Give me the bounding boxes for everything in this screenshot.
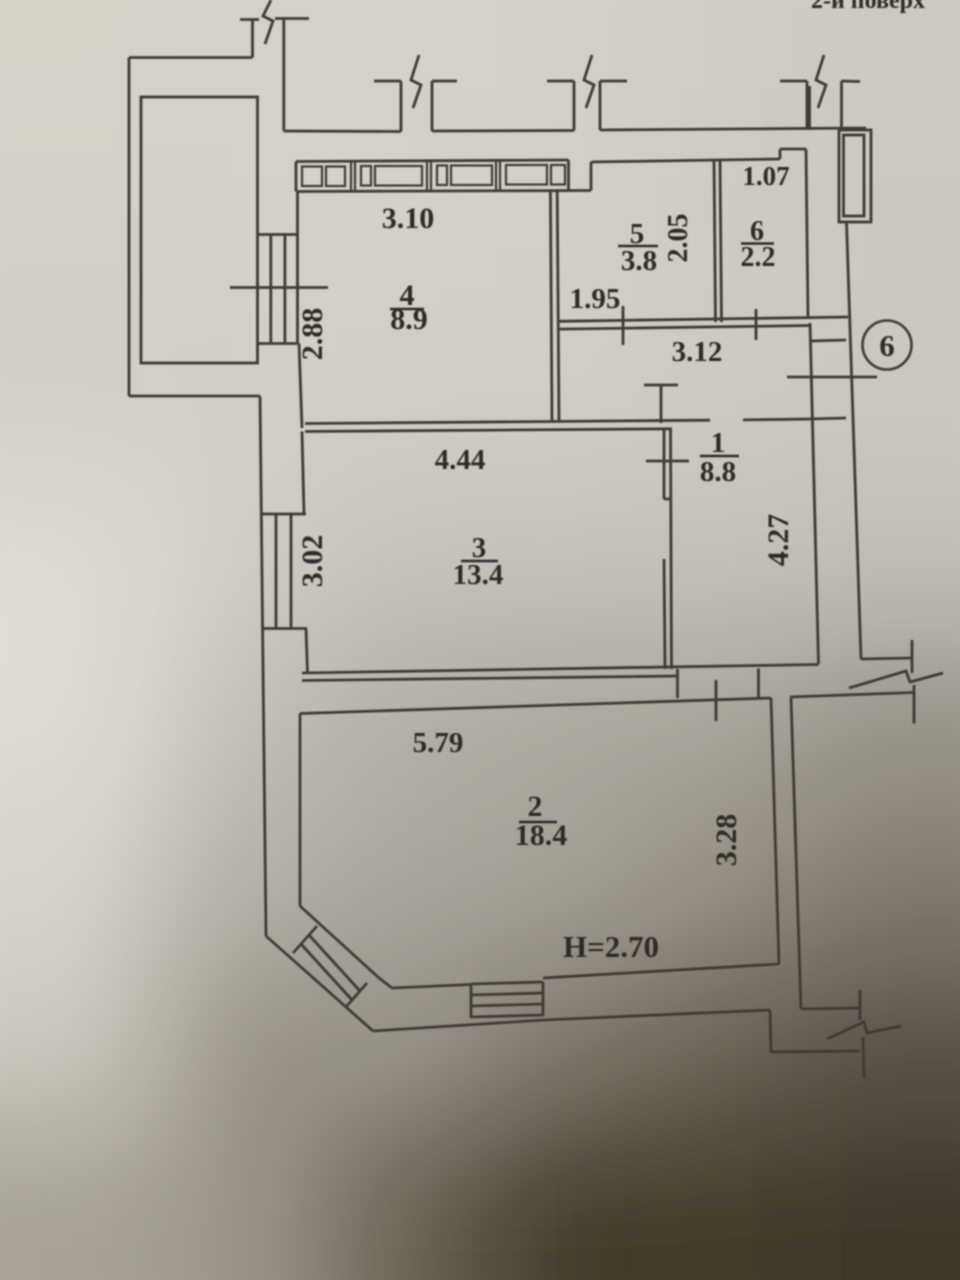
svg-text:3.02: 3.02	[296, 535, 329, 588]
svg-text:3.28: 3.28	[710, 814, 743, 867]
svg-text:2.88: 2.88	[296, 308, 329, 361]
svg-text:4.27: 4.27	[762, 514, 795, 567]
svg-text:1: 1	[711, 427, 726, 459]
svg-text:13.4: 13.4	[453, 559, 504, 591]
svg-text:2-й поверх: 2-й поверх	[811, 0, 925, 14]
svg-text:1.95: 1.95	[570, 283, 621, 315]
svg-text:3.10: 3.10	[382, 202, 435, 235]
svg-text:3.12: 3.12	[672, 336, 723, 368]
svg-text:8.9: 8.9	[390, 303, 428, 336]
svg-text:1.07: 1.07	[742, 161, 789, 191]
svg-text:18.4: 18.4	[515, 819, 568, 852]
svg-text:4.44: 4.44	[435, 444, 486, 476]
svg-text:2.2: 2.2	[741, 242, 776, 273]
svg-text:8.8: 8.8	[700, 456, 736, 488]
svg-text:6: 6	[879, 328, 895, 363]
svg-text:H=2.70: H=2.70	[563, 929, 659, 964]
svg-text:2.05: 2.05	[663, 214, 694, 263]
svg-text:3.8: 3.8	[621, 245, 657, 277]
svg-text:5.79: 5.79	[413, 727, 464, 759]
